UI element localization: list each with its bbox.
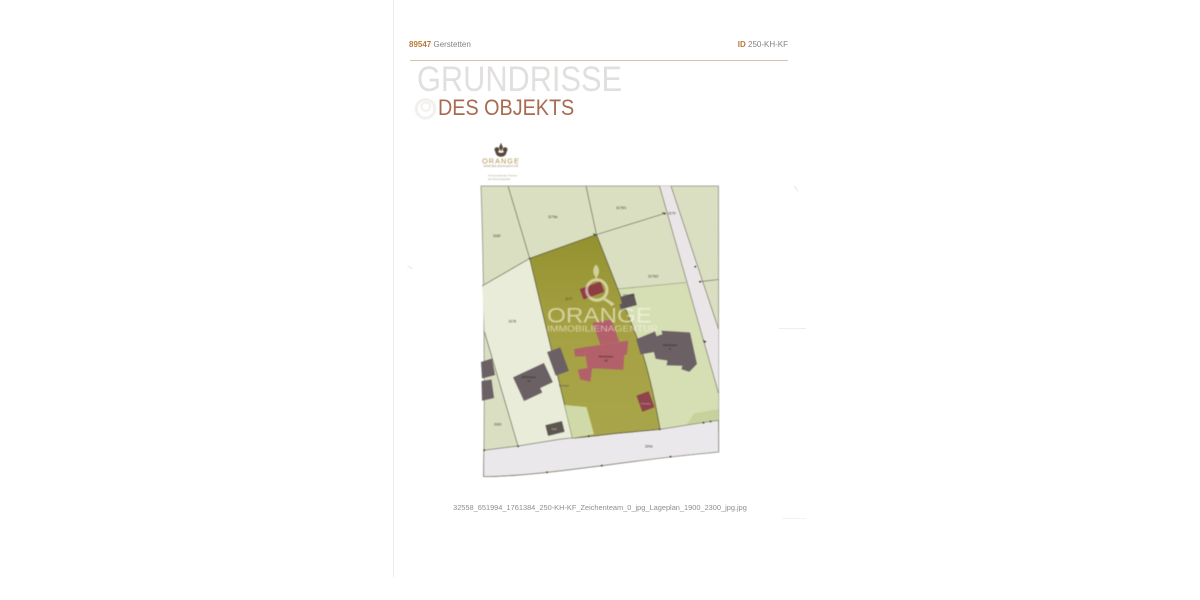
svg-text:Schuppen: Schuppen [623, 293, 635, 297]
svg-text:3175/1: 3175/1 [616, 206, 626, 210]
svg-text:3179: 3179 [668, 212, 676, 216]
svg-text:IMMOBILIENAGENTUR: IMMOBILIENAGENTUR [547, 324, 658, 334]
svg-text:12: 12 [527, 379, 531, 383]
svg-text:3178: 3178 [509, 320, 517, 324]
svg-text:Stall: Stall [551, 427, 556, 431]
svg-text:auf Wunschgebiet: auf Wunschgebiet [488, 177, 511, 181]
svg-text:320a: 320a [645, 445, 653, 449]
svg-text:3175/2: 3175/2 [648, 275, 658, 279]
svg-text:3176a: 3176a [548, 215, 558, 219]
svg-text:IMMOBILIENAGENTUR: IMMOBILIENAGENTUR [484, 165, 519, 168]
svg-text:3177: 3177 [565, 297, 573, 301]
svg-text:Garage: Garage [559, 384, 569, 388]
svg-text:ORANGE: ORANGE [482, 157, 520, 166]
svg-text:10: 10 [604, 359, 608, 363]
svg-text:Garage: Garage [640, 402, 650, 406]
svg-text:3181: 3181 [494, 423, 502, 427]
svg-text:3180: 3180 [493, 234, 501, 238]
